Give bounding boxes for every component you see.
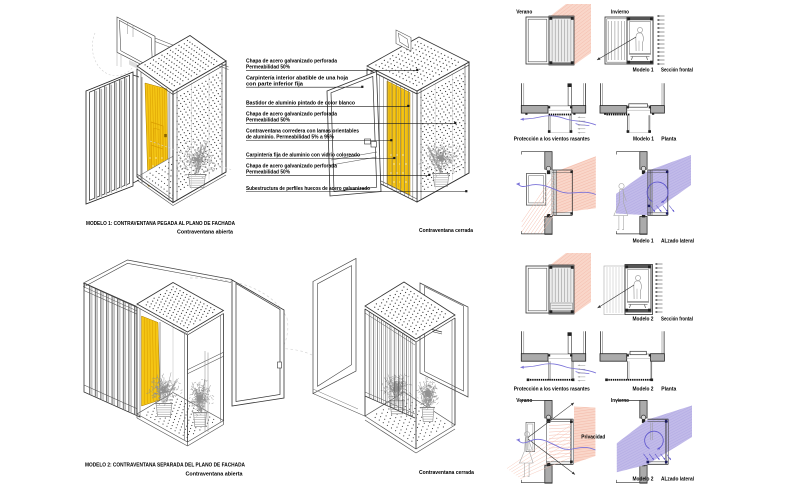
svg-text:Sección frontal: Sección frontal <box>661 317 693 323</box>
svg-text:Modelo 2: Modelo 2 <box>633 477 654 483</box>
svg-text:ALzado lateral: ALzado lateral <box>661 239 694 245</box>
svg-text:Invierno: Invierno <box>611 398 630 404</box>
svg-text:Contraventana cerrada: Contraventana cerrada <box>419 228 474 234</box>
svg-text:Contraventana abierta: Contraventana abierta <box>186 472 244 478</box>
svg-text:Protección a los vientos rasan: Protección a los vientos rasantes <box>514 137 590 143</box>
svg-text:Carpintería fija de aluminio c: Carpintería fija de aluminio con vidrio … <box>246 153 361 159</box>
svg-text:Modelo 2: Modelo 2 <box>633 387 654 393</box>
svg-text:Subestructura de perfiles huec: Subestructura de perfiles huecos de acer… <box>246 186 371 192</box>
svg-text:Privacidad: Privacidad <box>581 435 605 441</box>
svg-text:Verano: Verano <box>516 398 533 404</box>
svg-text:MODELO 2: CONTRAVENTANA SEPARA: MODELO 2: CONTRAVENTANA SEPARADA DEL PLA… <box>85 463 245 469</box>
svg-text:Protección a los vientos rasan: Protección a los vientos rasantes <box>514 387 590 393</box>
svg-text:Modelo 1: Modelo 1 <box>633 68 654 74</box>
svg-text:con parte inferior fija: con parte inferior fija <box>246 82 303 88</box>
svg-text:Verano: Verano <box>516 10 533 16</box>
svg-text:Contraventana cerrada: Contraventana cerrada <box>419 470 475 476</box>
svg-text:Modelo 1: Modelo 1 <box>633 239 654 245</box>
svg-text:Sección frontal: Sección frontal <box>661 68 693 74</box>
svg-text:de aluminio. Permeabilidad 5%: de aluminio. Permeabilidad 5% a 95% <box>246 135 334 141</box>
svg-text:Modelo 1: Modelo 1 <box>633 137 654 143</box>
svg-text:Invierno: Invierno <box>611 10 630 16</box>
svg-text:ALzado lateral: ALzado lateral <box>661 477 694 483</box>
svg-text:Planta: Planta <box>661 387 676 393</box>
svg-text:Modelo 2: Modelo 2 <box>633 317 654 323</box>
svg-text:MODELO 1: CONTRAVENTANA PEGADA: MODELO 1: CONTRAVENTANA PEGADA AL PLANO … <box>86 221 235 227</box>
svg-text:Permeabilidad 50%: Permeabilidad 50% <box>246 65 290 71</box>
svg-text:Permeabilidad 50%: Permeabilidad 50% <box>246 170 290 176</box>
svg-text:Permeabilidad 50%: Permeabilidad 50% <box>246 118 290 124</box>
svg-text:Bastidor de aluminio pintado d: Bastidor de aluminio pintado de color bl… <box>246 100 356 106</box>
svg-text:Planta: Planta <box>661 137 676 143</box>
svg-text:Contraventana abierta: Contraventana abierta <box>177 230 234 236</box>
